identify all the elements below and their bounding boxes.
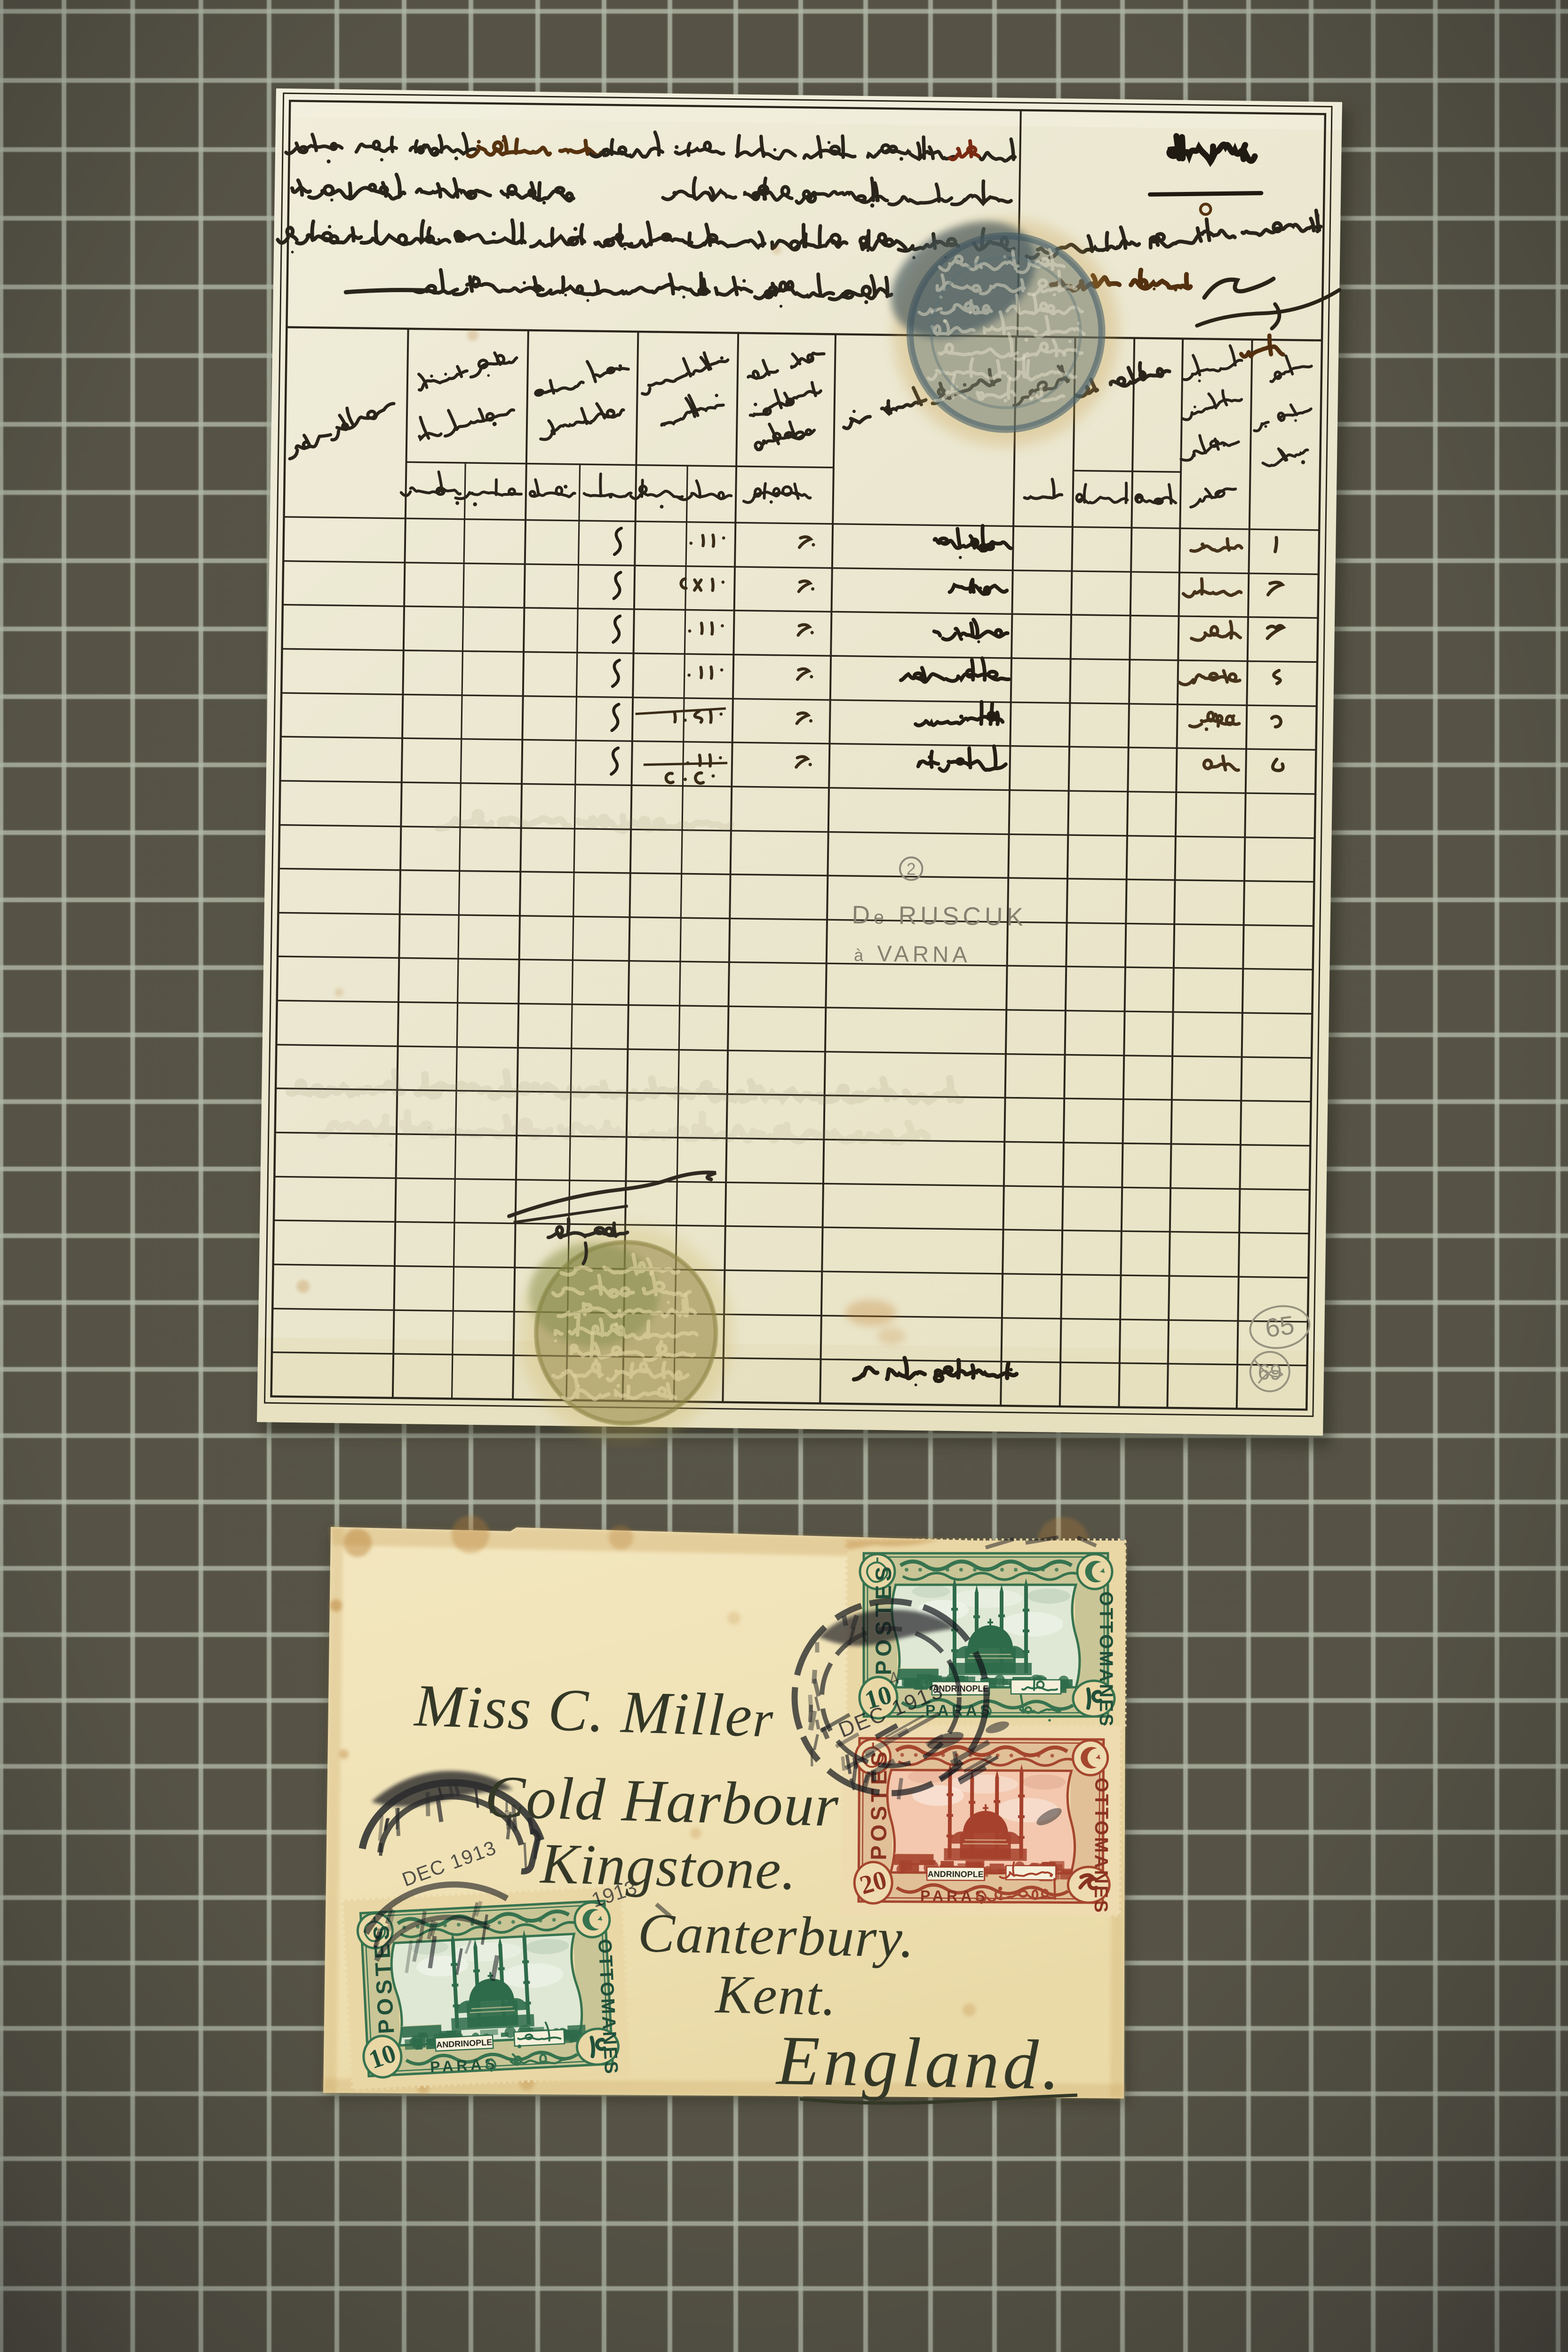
svg-text:OTTOMANES: OTTOMANES	[1096, 1591, 1116, 1728]
svg-text:Canterbury.: Canterbury.	[637, 1902, 915, 1969]
svg-text:Kingstone.: Kingstone.	[539, 1832, 798, 1902]
svg-text:Cold Harbour: Cold Harbour	[484, 1763, 840, 1839]
svg-text:Miss C. Miller: Miss C. Miller	[413, 1672, 775, 1750]
svg-text:Kent.: Kent.	[714, 1964, 837, 2027]
svg-text:PARAS: PARAS	[430, 2055, 498, 2075]
svg-text:ANDRINOPLE: ANDRINOPLE	[928, 1869, 984, 1879]
svg-text:65: 65	[1264, 1310, 1296, 1343]
svg-text:à VARNA: à VARNA	[854, 941, 971, 968]
svg-text:OTTOMANES: OTTOMANES	[1090, 1778, 1112, 1915]
svg-text:2: 2	[907, 859, 916, 878]
svg-text:England.: England.	[775, 2021, 1064, 2105]
